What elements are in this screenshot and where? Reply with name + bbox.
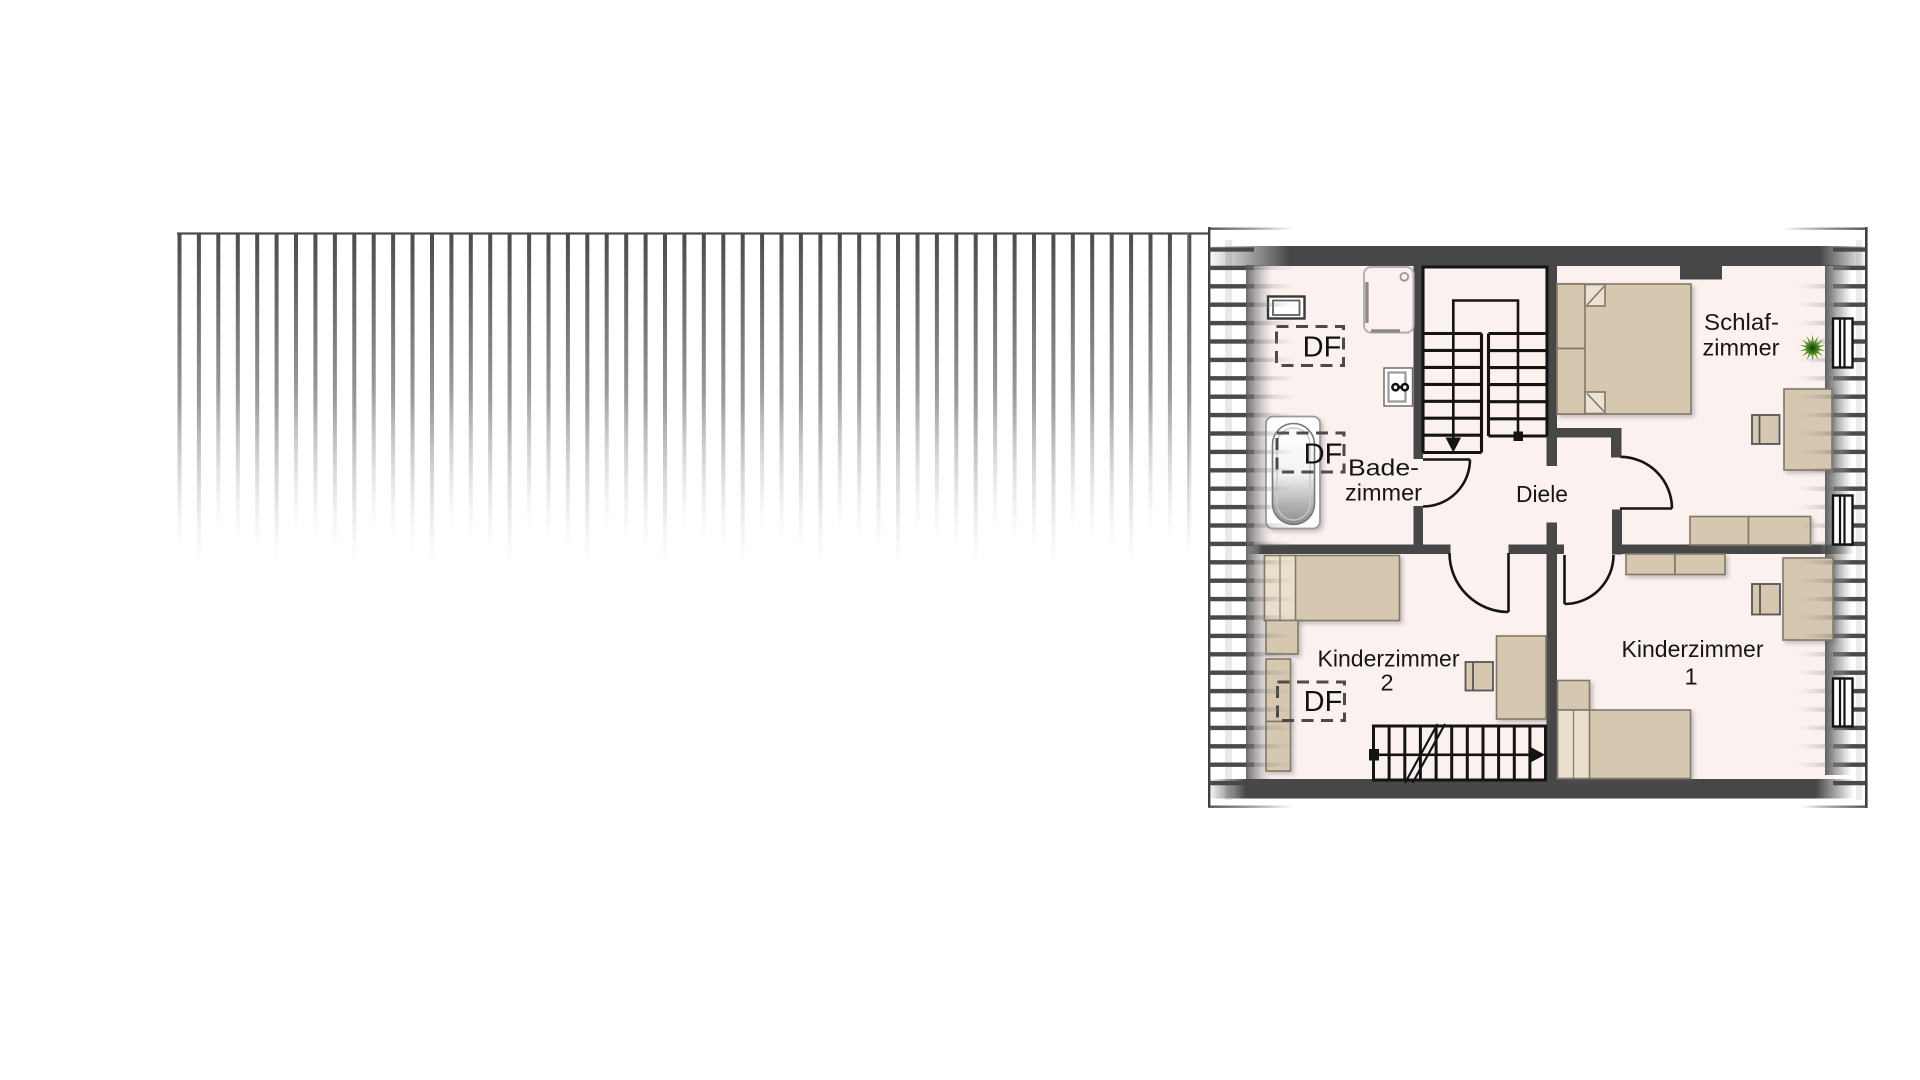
- svg-text:Kinderzimmer: Kinderzimmer: [1622, 636, 1764, 662]
- svg-text:Diele: Diele: [1516, 481, 1568, 507]
- svg-text:1: 1: [1684, 664, 1697, 690]
- svg-text:zimmer: zimmer: [1703, 335, 1780, 361]
- svg-text:Kinderzimmer: Kinderzimmer: [1318, 646, 1460, 672]
- svg-text:Schlaf-: Schlaf-: [1704, 309, 1779, 335]
- svg-text:DF: DF: [1304, 439, 1343, 471]
- svg-text:DF: DF: [1303, 332, 1342, 364]
- svg-text:DF: DF: [1304, 686, 1343, 718]
- svg-text:2: 2: [1380, 670, 1393, 696]
- svg-text:Bade-: Bade-: [1348, 455, 1419, 481]
- svg-text:zimmer: zimmer: [1345, 480, 1422, 506]
